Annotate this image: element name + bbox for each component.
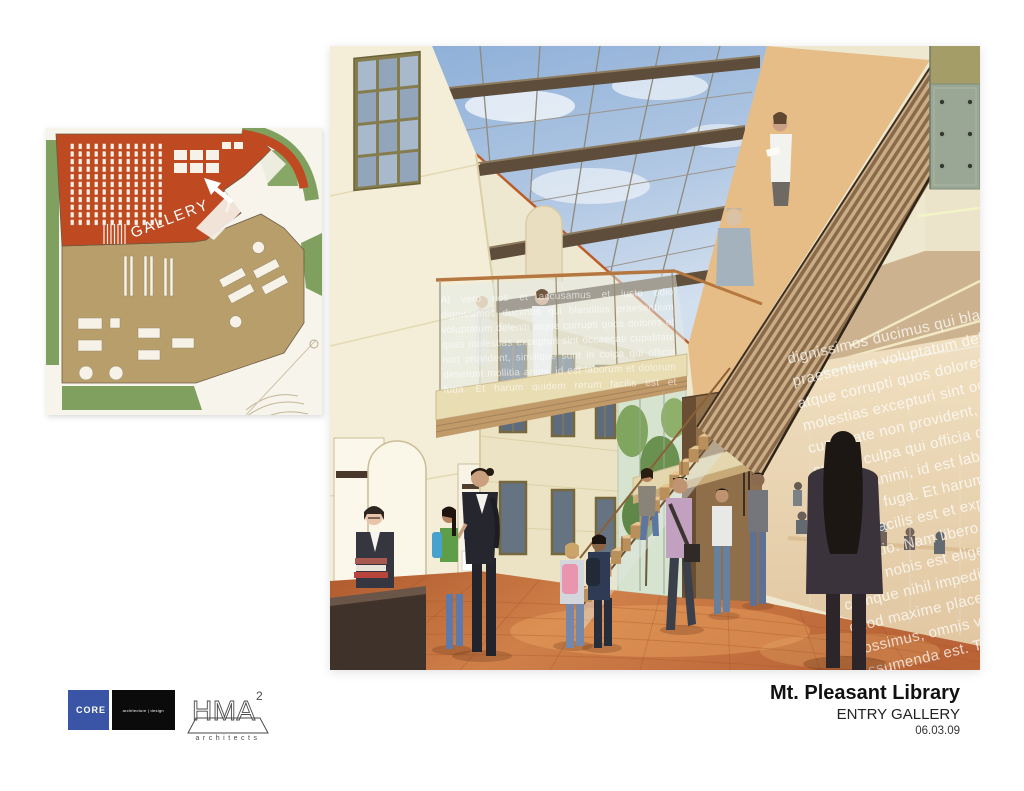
desk-books [354,558,388,578]
hma2-architects-logo: HMA 2 architects [182,686,274,742]
hma-caption: architects [196,735,261,742]
plan-auditorium-seats [68,142,166,226]
core-logo-label: CORE [76,705,106,715]
upper-facade [526,206,562,282]
hma-letters: HMA [192,695,256,726]
floor-plan-inset: GALLERY [46,128,322,415]
plan-stair-hatch [104,224,125,244]
entry-gallery-rendering: At vero eos et accusamus et iusto odio d… [330,46,980,670]
sheet-date: 06.03.09 [770,724,960,739]
title-block: Mt. Pleasant Library ENTRY GALLERY 06.03… [770,682,960,739]
left-wall-window [354,52,420,191]
presentation-slide: GALLERY [0,0,1024,791]
rendering-scene [330,46,980,670]
dark-backpack [586,558,600,586]
project-title: Mt. Pleasant Library [770,682,960,705]
messenger-bag [684,544,700,562]
core-architecture-design-logo: architecture | design [112,690,175,730]
core-logo: CORE [68,690,109,730]
core-logo-tagline: architecture | design [123,708,164,713]
hma-superscript: 2 [256,689,263,703]
pink-backpack [562,564,578,594]
view-title: ENTRY GALLERY [770,705,960,724]
blue-backpack [432,532,442,558]
bolted-metal-panel [930,46,980,189]
